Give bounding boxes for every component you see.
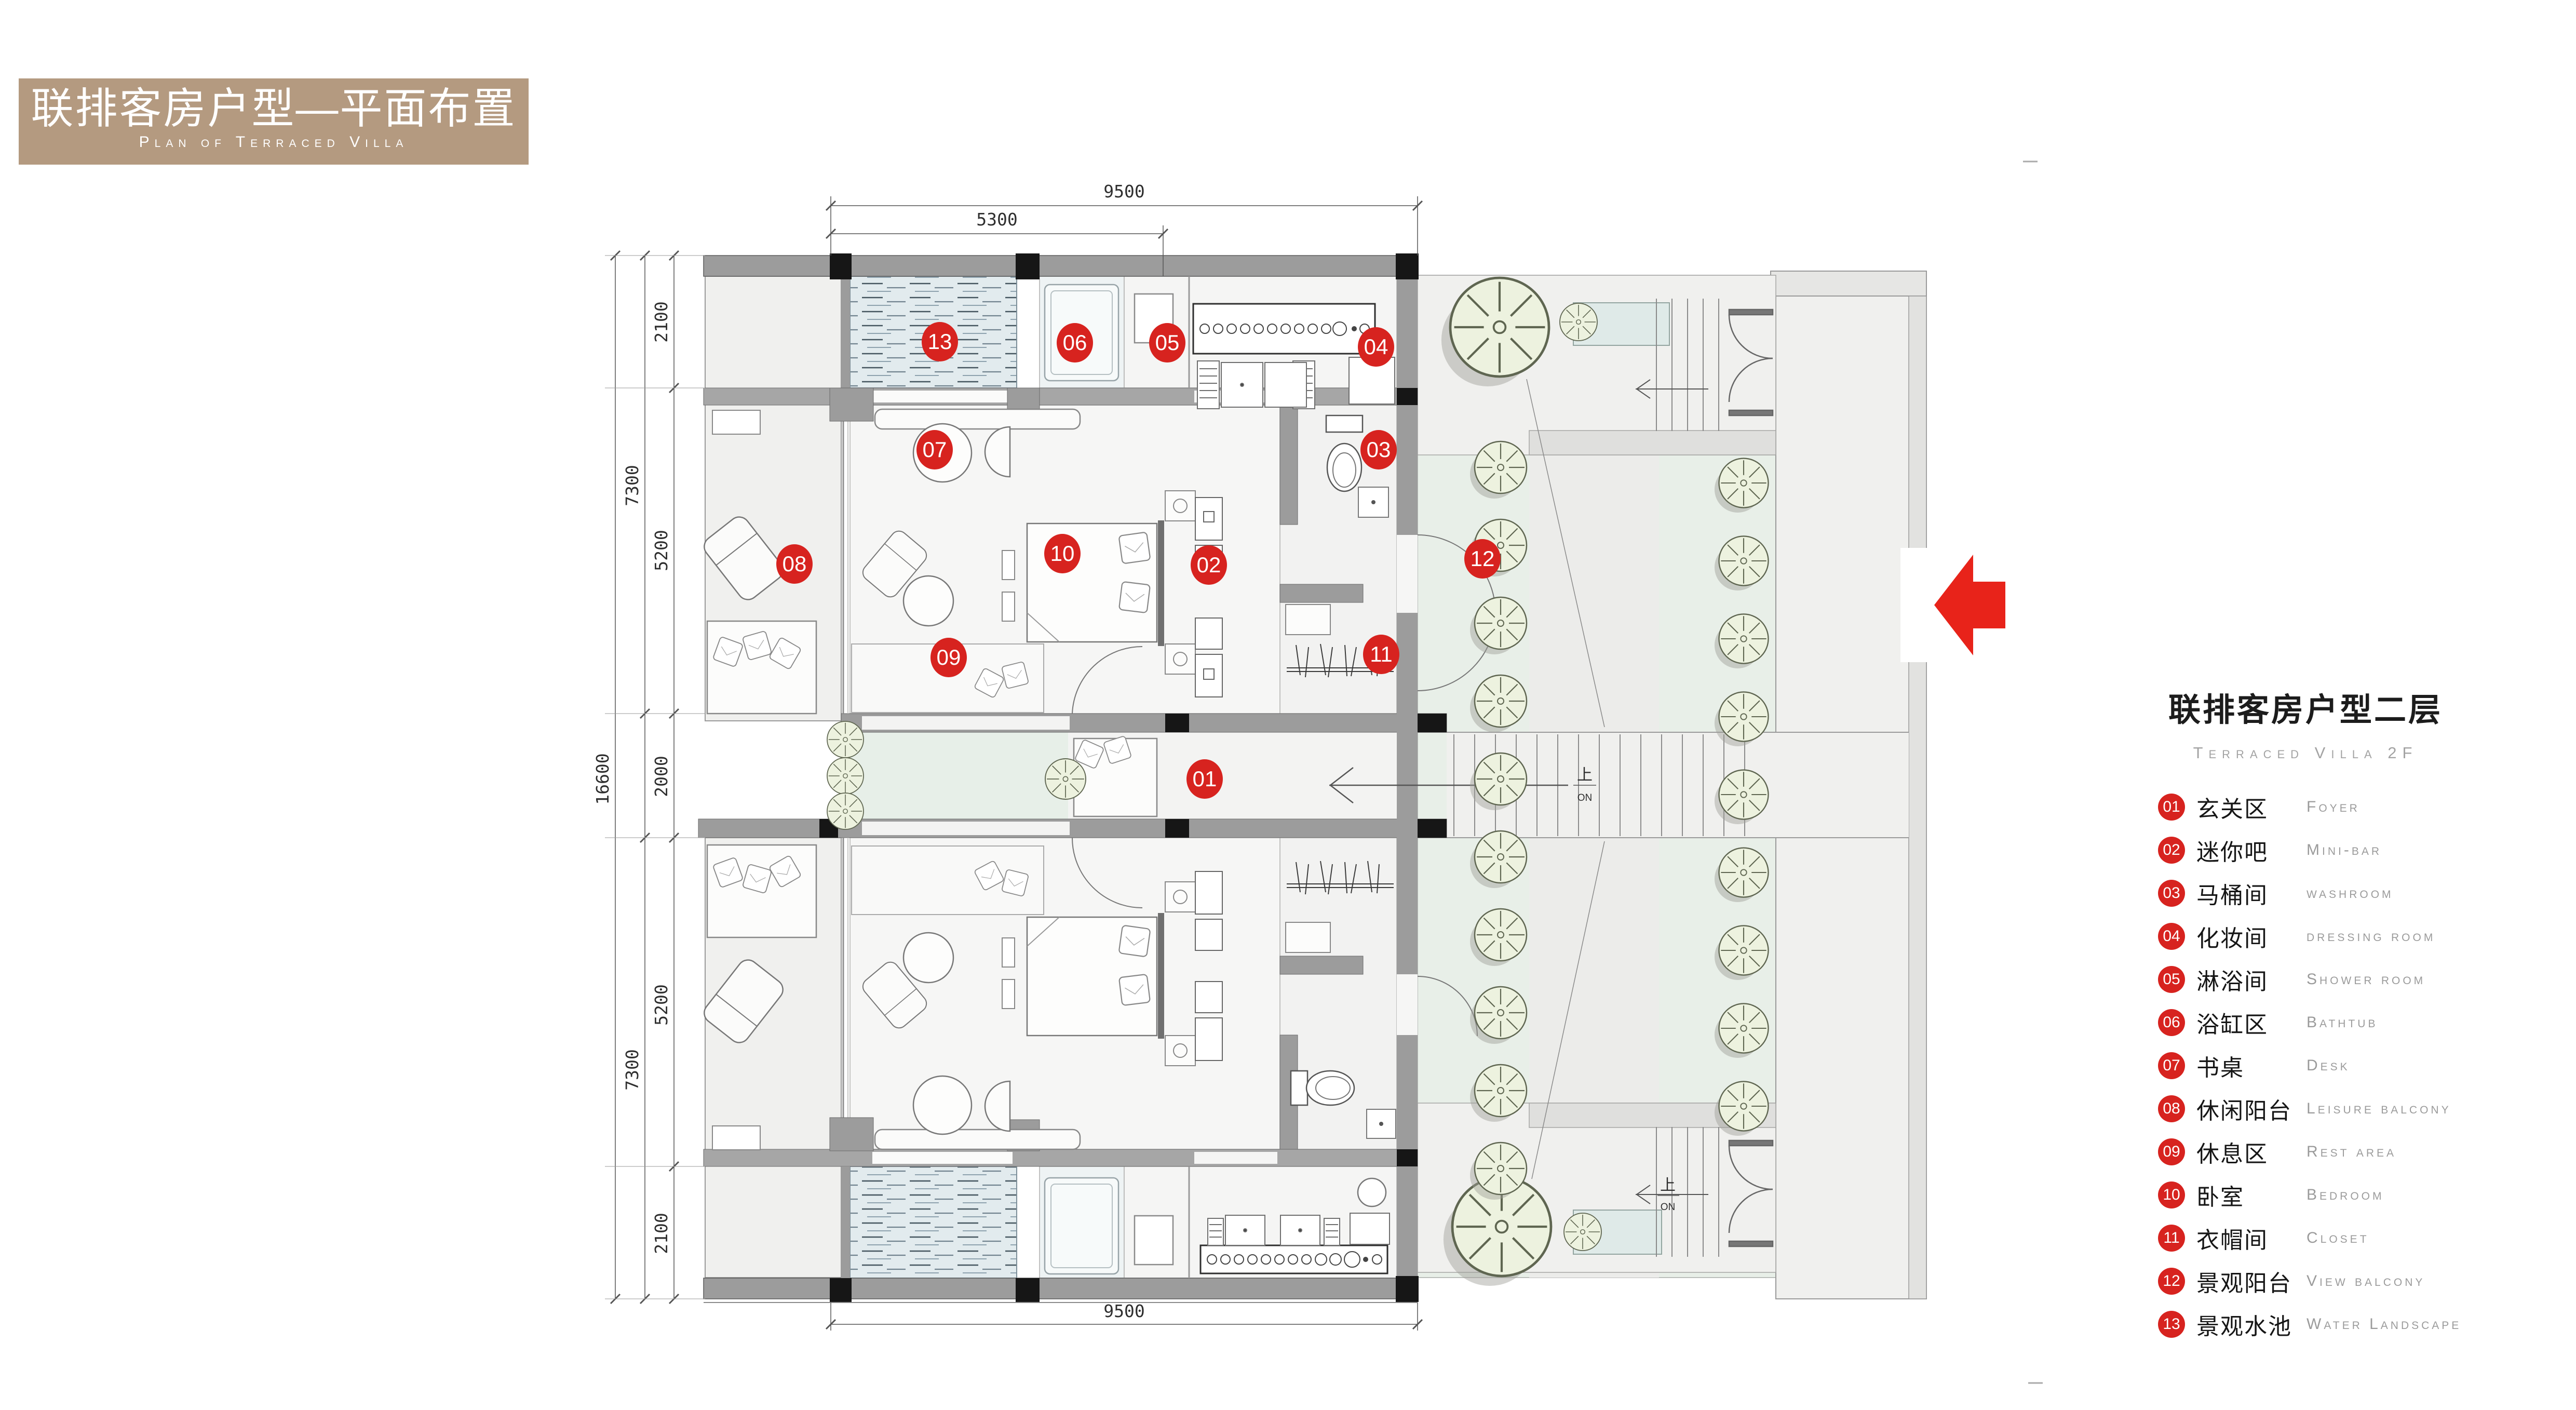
dim-seg-2: 5200 [651, 530, 671, 571]
legend-item-11: 11 衣帽间 Closet [2145, 1216, 2570, 1259]
dim-height-lower: 7300 [622, 1049, 642, 1090]
legend-label-zh: 玄关区 [2196, 790, 2307, 824]
legend-number-badge: 02 [2158, 837, 2185, 864]
direction-arrow-icon [1934, 555, 2005, 655]
plan-marker-03: 03 [1360, 430, 1397, 469]
legend-label-en: Rest area [2307, 1143, 2396, 1161]
legend-number-badge: 06 [2158, 1009, 2185, 1036]
legend-label-zh: 景观阳台 [2196, 1265, 2307, 1298]
legend-item-08: 08 休闲阳台 Leisure balcony [2145, 1087, 2570, 1130]
plan-marker-04: 04 [1358, 327, 1394, 367]
stair-up-label-zh-outdoor: 上 [1660, 1177, 1676, 1194]
stair-up-label-en-outdoor: ON [1661, 1202, 1676, 1213]
legend-label-en: Mini-bar [2307, 841, 2382, 859]
plan-marker-06: 06 [1057, 323, 1093, 362]
plan-marker-11: 11 [1363, 635, 1399, 674]
legend-item-02: 02 迷你吧 Mini-bar [2145, 828, 2570, 871]
legend-number-badge: 05 [2158, 966, 2185, 993]
legend-number-badge: 10 [2158, 1181, 2185, 1208]
legend-label-zh: 化妆间 [2196, 920, 2307, 953]
legend-label-en: dressing room [2307, 928, 2435, 945]
entrance-arrow [1900, 548, 2005, 662]
legend-label-zh: 休闲阳台 [2196, 1092, 2307, 1125]
dim-height-total: 16600 [592, 753, 613, 804]
legend-label-en: Shower room [2307, 971, 2425, 988]
legend-number-badge: 01 [2158, 794, 2185, 821]
page: { "header": { "title_zh": "联排客房户型—平面布置",… [0, 0, 2576, 1410]
legend-label-en: Foyer [2307, 798, 2360, 816]
legend-item-04: 04 化妆间 dressing room [2145, 915, 2570, 958]
legend-item-10: 10 卧室 Bedroom [2145, 1173, 2570, 1216]
legend-label-zh: 马桶间 [2196, 877, 2307, 910]
legend-number-badge: 03 [2158, 880, 2185, 907]
dim-seg-5: 2100 [651, 1213, 671, 1254]
legend-label-en: Closet [2307, 1229, 2369, 1247]
legend-number-badge: 09 [2158, 1138, 2185, 1165]
legend-label-zh: 书桌 [2196, 1049, 2307, 1082]
legend-item-01: 01 玄关区 Foyer [2145, 785, 2570, 828]
plan-marker-10: 10 [1044, 534, 1081, 573]
legend-number-badge: 12 [2158, 1268, 2185, 1295]
dim-width-left: 5300 [976, 209, 1017, 230]
plan-marker-01: 01 [1186, 759, 1223, 799]
legend-label-zh: 卧室 [2196, 1178, 2307, 1212]
legend-label-en: View balcony [2307, 1272, 2425, 1290]
legend-label-zh: 衣帽间 [2196, 1221, 2307, 1255]
legend-number-badge: 11 [2158, 1225, 2185, 1252]
legend-subtitle: Terraced Villa 2F [2145, 744, 2466, 762]
dim-height-upper: 7300 [622, 465, 642, 506]
legend-label-en: Bedroom [2307, 1186, 2384, 1204]
legend-rows: 01 玄关区 Foyer 02 迷你吧 Mini-bar 03 马桶间 wash… [2145, 785, 2570, 1346]
legend-label-en: Leisure balcony [2307, 1100, 2451, 1118]
plan-marker-09: 09 [930, 638, 967, 677]
dim-width-total: 9500 [1103, 181, 1144, 202]
legend-item-07: 07 书桌 Desk [2145, 1044, 2570, 1087]
dim-seg-1: 2100 [651, 301, 671, 342]
legend-item-13: 13 景观水池 Water Landscape [2145, 1302, 2570, 1346]
legend-item-06: 06 浴缸区 Bathtub [2145, 1001, 2570, 1044]
plan-marker-05: 05 [1149, 323, 1185, 362]
legend-item-05: 05 淋浴间 Shower room [2145, 958, 2570, 1001]
legend-label-zh: 迷你吧 [2196, 834, 2307, 867]
legend-number-badge: 04 [2158, 923, 2185, 950]
plan-marker-02: 02 [1191, 545, 1227, 585]
legend-label-zh: 休息区 [2196, 1135, 2307, 1169]
dim-seg-3: 2000 [651, 756, 671, 797]
legend-label-zh: 浴缸区 [2196, 1006, 2307, 1039]
plan-marker-12: 12 [1464, 539, 1501, 579]
dim-width-total-bottom: 9500 [1103, 1301, 1144, 1321]
legend-label-en: washroom [2307, 884, 2394, 902]
plan-marker-07: 07 [916, 430, 953, 469]
stair-up-label-zh: 上 [1577, 767, 1593, 784]
legend-item-03: 03 马桶间 washroom [2145, 871, 2570, 915]
legend-title: 联排客房户型二层 [2145, 683, 2466, 730]
legend-item-09: 09 休息区 Rest area [2145, 1130, 2570, 1173]
legend-label-zh: 景观水池 [2196, 1308, 2307, 1341]
legend-number-badge: 08 [2158, 1095, 2185, 1122]
legend-number-badge: 13 [2158, 1311, 2185, 1338]
plan-marker-08: 08 [776, 544, 813, 584]
plan-marker-13: 13 [922, 322, 958, 361]
legend-label-en: Desk [2307, 1057, 2350, 1075]
dim-seg-4: 5200 [651, 984, 671, 1025]
legend-label-en: Water Landscape [2307, 1315, 2461, 1333]
legend-label-en: Bathtub [2307, 1014, 2378, 1031]
legend-item-12: 12 景观阳台 View balcony [2145, 1259, 2570, 1302]
legend-number-badge: 07 [2158, 1052, 2185, 1079]
legend-label-zh: 淋浴间 [2196, 963, 2307, 996]
stair-up-label-en: ON [1577, 793, 1593, 803]
legend: 联排客房户型二层 Terraced Villa 2F 01 玄关区 Foyer … [2145, 683, 2570, 1346]
